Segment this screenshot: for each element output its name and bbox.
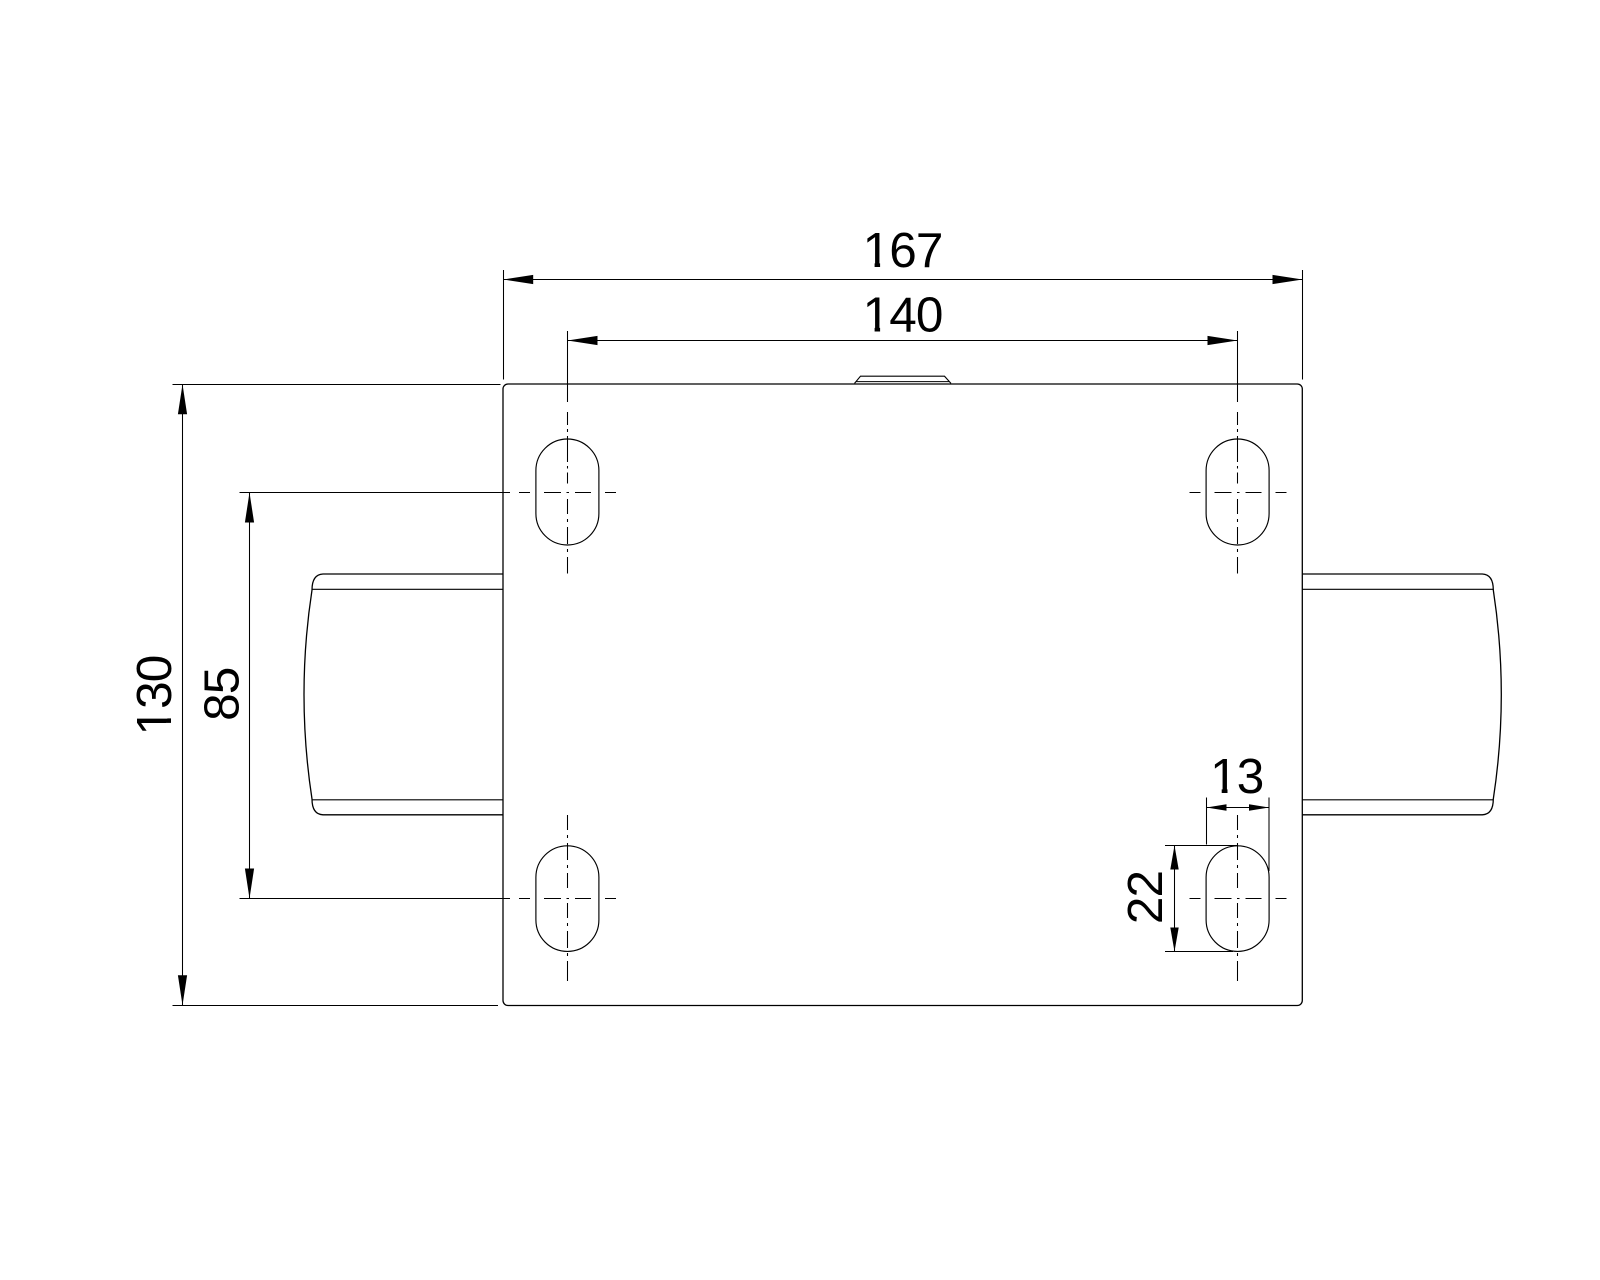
svg-text:13: 13: [1210, 749, 1263, 804]
svg-text:130: 130: [127, 656, 182, 736]
svg-text:85: 85: [194, 668, 249, 721]
svg-text:167: 167: [863, 223, 943, 278]
svg-text:22: 22: [1118, 871, 1173, 924]
svg-text:140: 140: [863, 288, 943, 343]
